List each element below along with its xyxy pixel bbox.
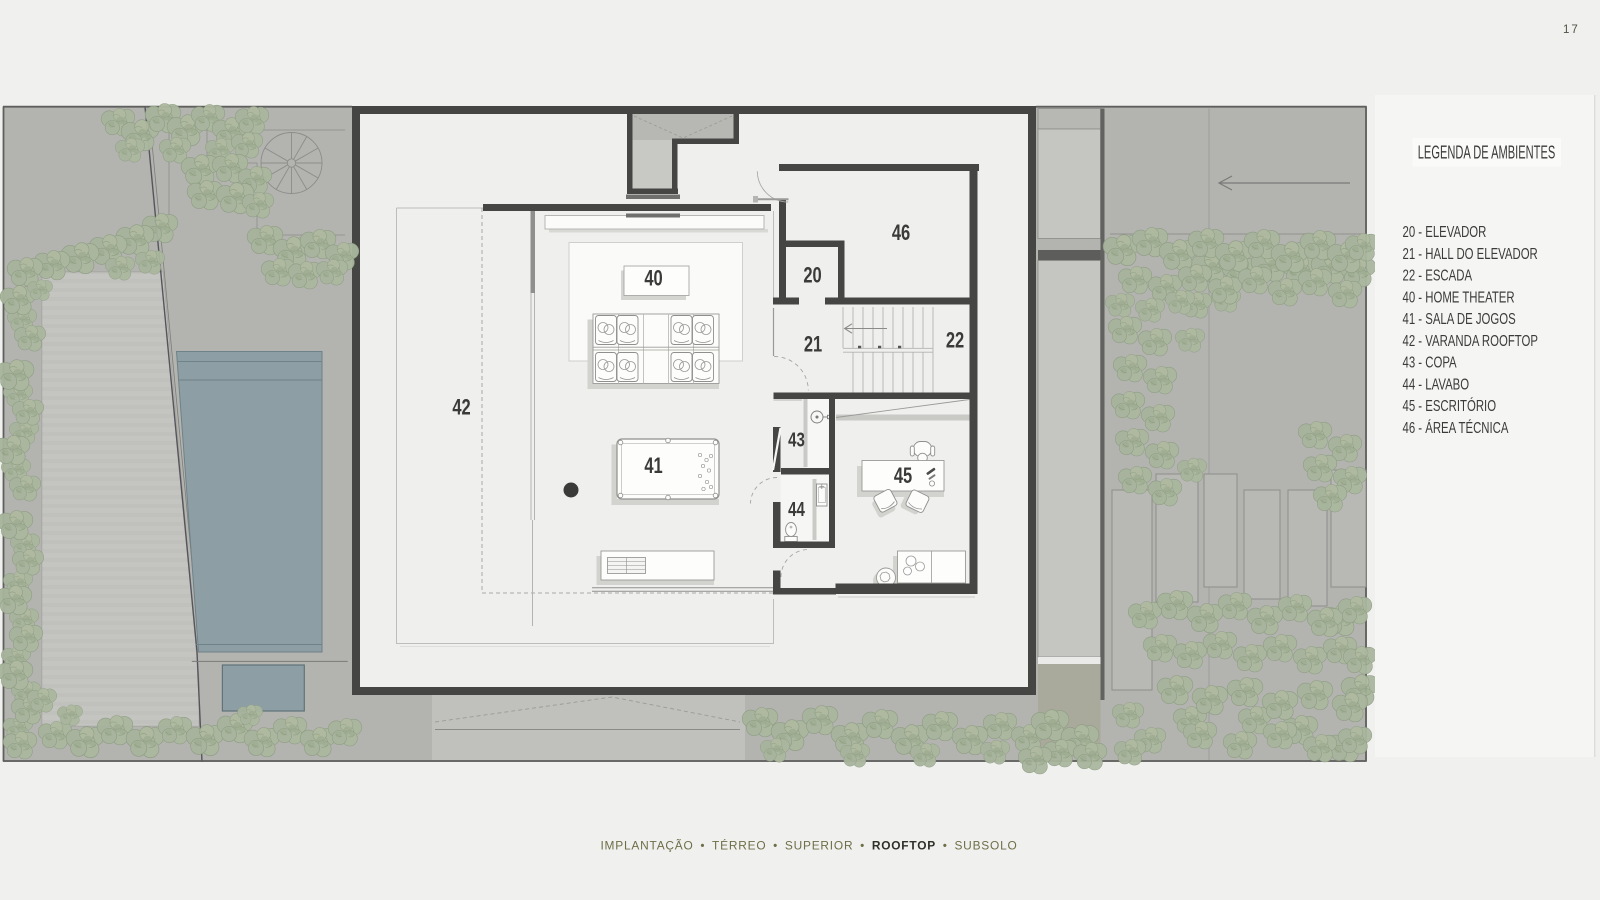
svg-text:46 - ÁREA TÉCNICA: 46 - ÁREA TÉCNICA bbox=[1403, 419, 1510, 436]
svg-text:45 - ESCRITÓRIO: 45 - ESCRITÓRIO bbox=[1403, 397, 1497, 414]
svg-text:20 - ELEVADOR: 20 - ELEVADOR bbox=[1403, 223, 1487, 240]
svg-text:20: 20 bbox=[803, 263, 822, 288]
svg-text:41: 41 bbox=[644, 454, 663, 479]
svg-text:21: 21 bbox=[804, 332, 823, 357]
svg-text:46: 46 bbox=[892, 221, 911, 246]
svg-text:22: 22 bbox=[946, 328, 965, 353]
svg-text:IMPLANTAÇÃO • TÉRREO • SUPERIO: IMPLANTAÇÃO • TÉRREO • SUPERIOR • ROOFTO… bbox=[600, 838, 1017, 853]
svg-text:21 - HALL DO ELEVADOR: 21 - HALL DO ELEVADOR bbox=[1403, 245, 1538, 262]
svg-text:22 - ESCADA: 22 - ESCADA bbox=[1403, 267, 1473, 284]
svg-text:42 - VARANDA ROOFTOP: 42 - VARANDA ROOFTOP bbox=[1403, 332, 1538, 349]
svg-text:40 - HOME THEATER: 40 - HOME THEATER bbox=[1403, 289, 1515, 306]
svg-text:42: 42 bbox=[452, 395, 471, 420]
svg-text:LEGENDA DE AMBIENTES: LEGENDA DE AMBIENTES bbox=[1418, 143, 1556, 164]
svg-text:44: 44 bbox=[788, 498, 805, 521]
svg-text:41 - SALA DE JOGOS: 41 - SALA DE JOGOS bbox=[1403, 310, 1516, 327]
svg-text:43: 43 bbox=[788, 428, 805, 451]
svg-text:45: 45 bbox=[894, 464, 913, 489]
svg-text:17: 17 bbox=[1563, 24, 1580, 36]
svg-text:40: 40 bbox=[644, 266, 663, 291]
svg-text:43 - COPA: 43 - COPA bbox=[1403, 354, 1458, 371]
svg-text:44 - LAVABO: 44 - LAVABO bbox=[1403, 376, 1470, 393]
